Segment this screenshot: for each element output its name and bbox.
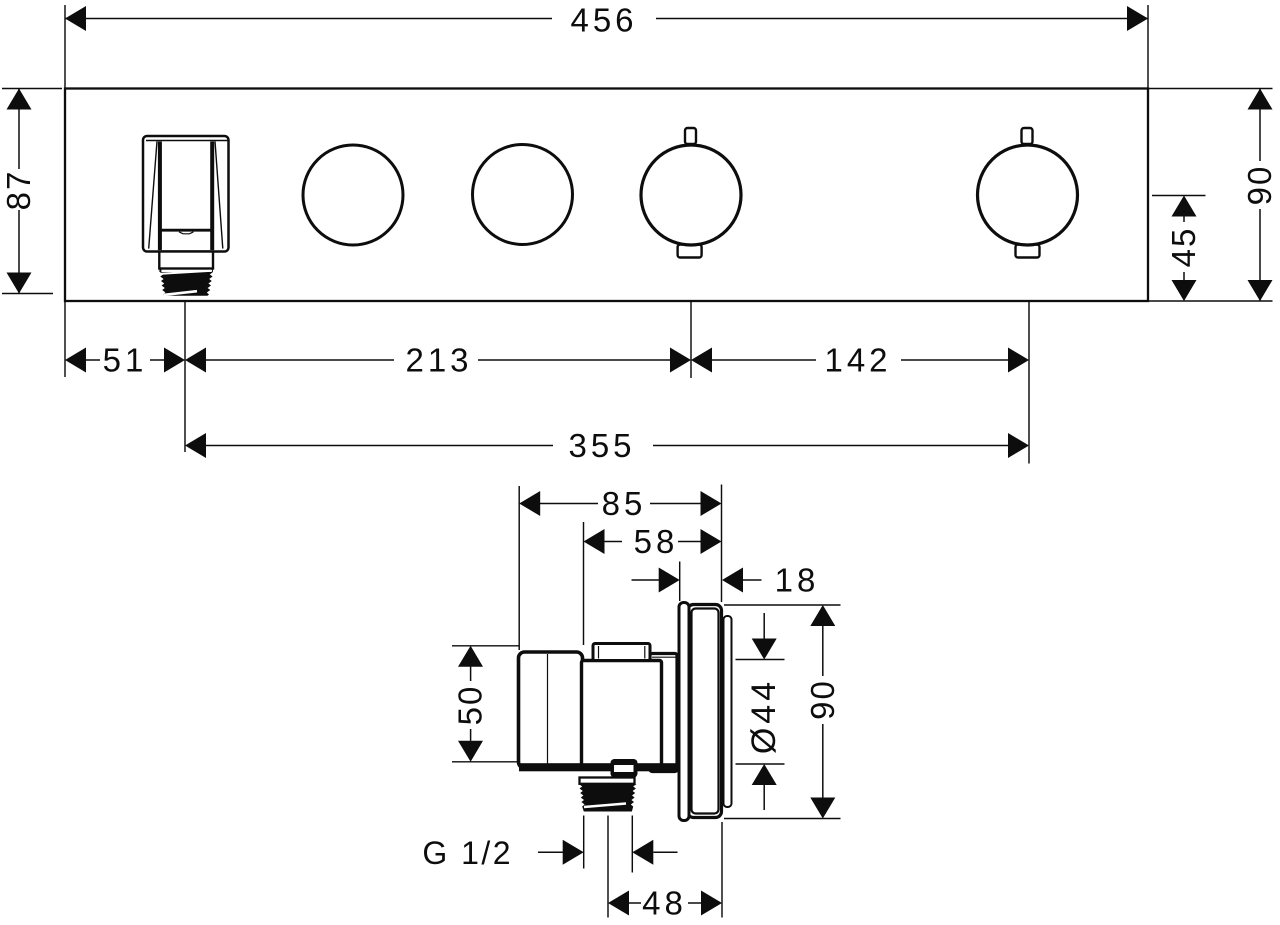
svg-text:18: 18	[775, 562, 820, 599]
svg-text:Ø44: Ø44	[745, 678, 783, 754]
svg-text:87: 87	[0, 170, 37, 211]
svg-text:45: 45	[1165, 227, 1202, 268]
svg-text:G 1/2: G 1/2	[422, 835, 513, 871]
svg-text:48: 48	[642, 885, 687, 922]
svg-text:142: 142	[824, 342, 891, 379]
svg-text:90: 90	[1241, 165, 1278, 206]
svg-text:51: 51	[103, 342, 148, 379]
svg-text:456: 456	[570, 2, 637, 39]
svg-text:90: 90	[804, 679, 841, 720]
svg-text:355: 355	[568, 427, 635, 464]
svg-text:213: 213	[405, 342, 472, 379]
svg-text:58: 58	[634, 523, 679, 560]
svg-text:50: 50	[452, 685, 489, 726]
svg-text:85: 85	[602, 485, 647, 522]
